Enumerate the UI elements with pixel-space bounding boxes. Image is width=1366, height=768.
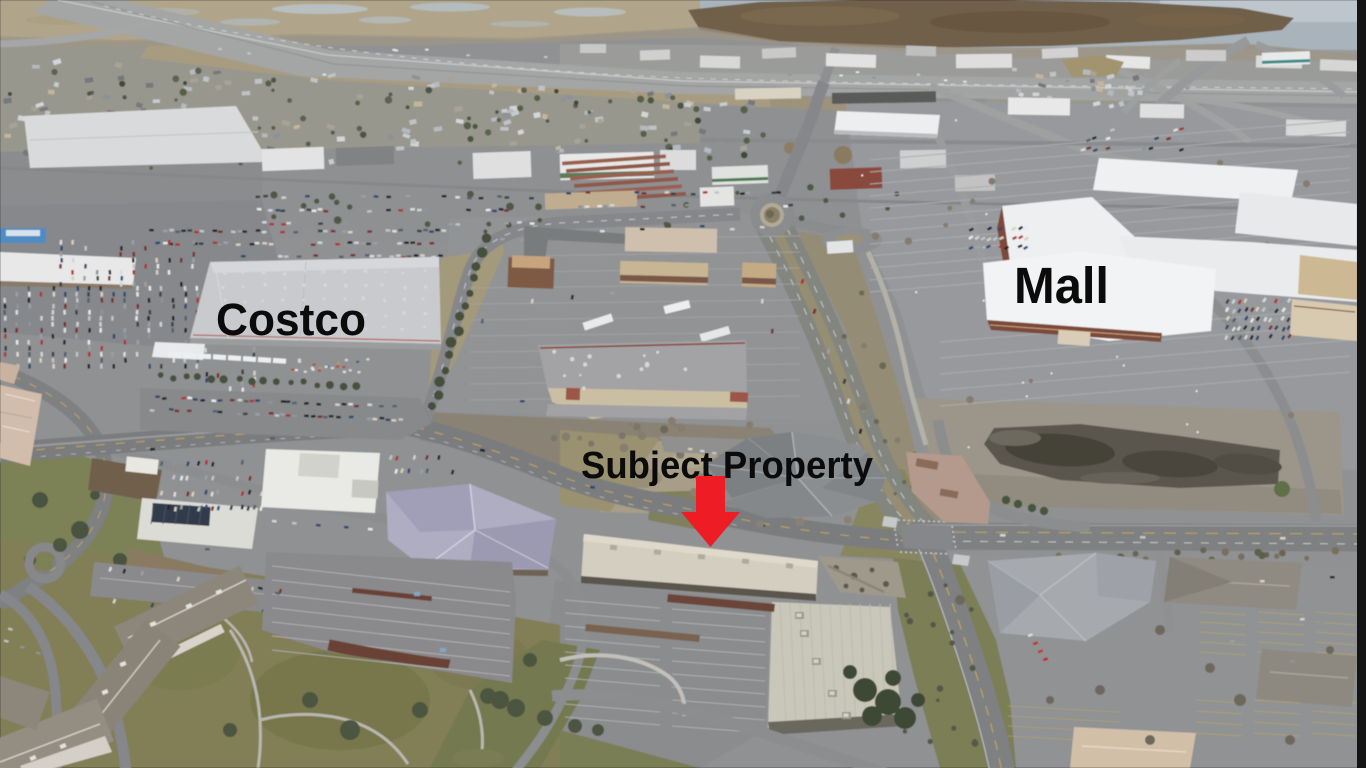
- svg-text:Mall: Mall: [1014, 257, 1109, 314]
- svg-text:Costco: Costco: [216, 294, 366, 345]
- svg-text:Subject Property: Subject Property: [581, 445, 873, 487]
